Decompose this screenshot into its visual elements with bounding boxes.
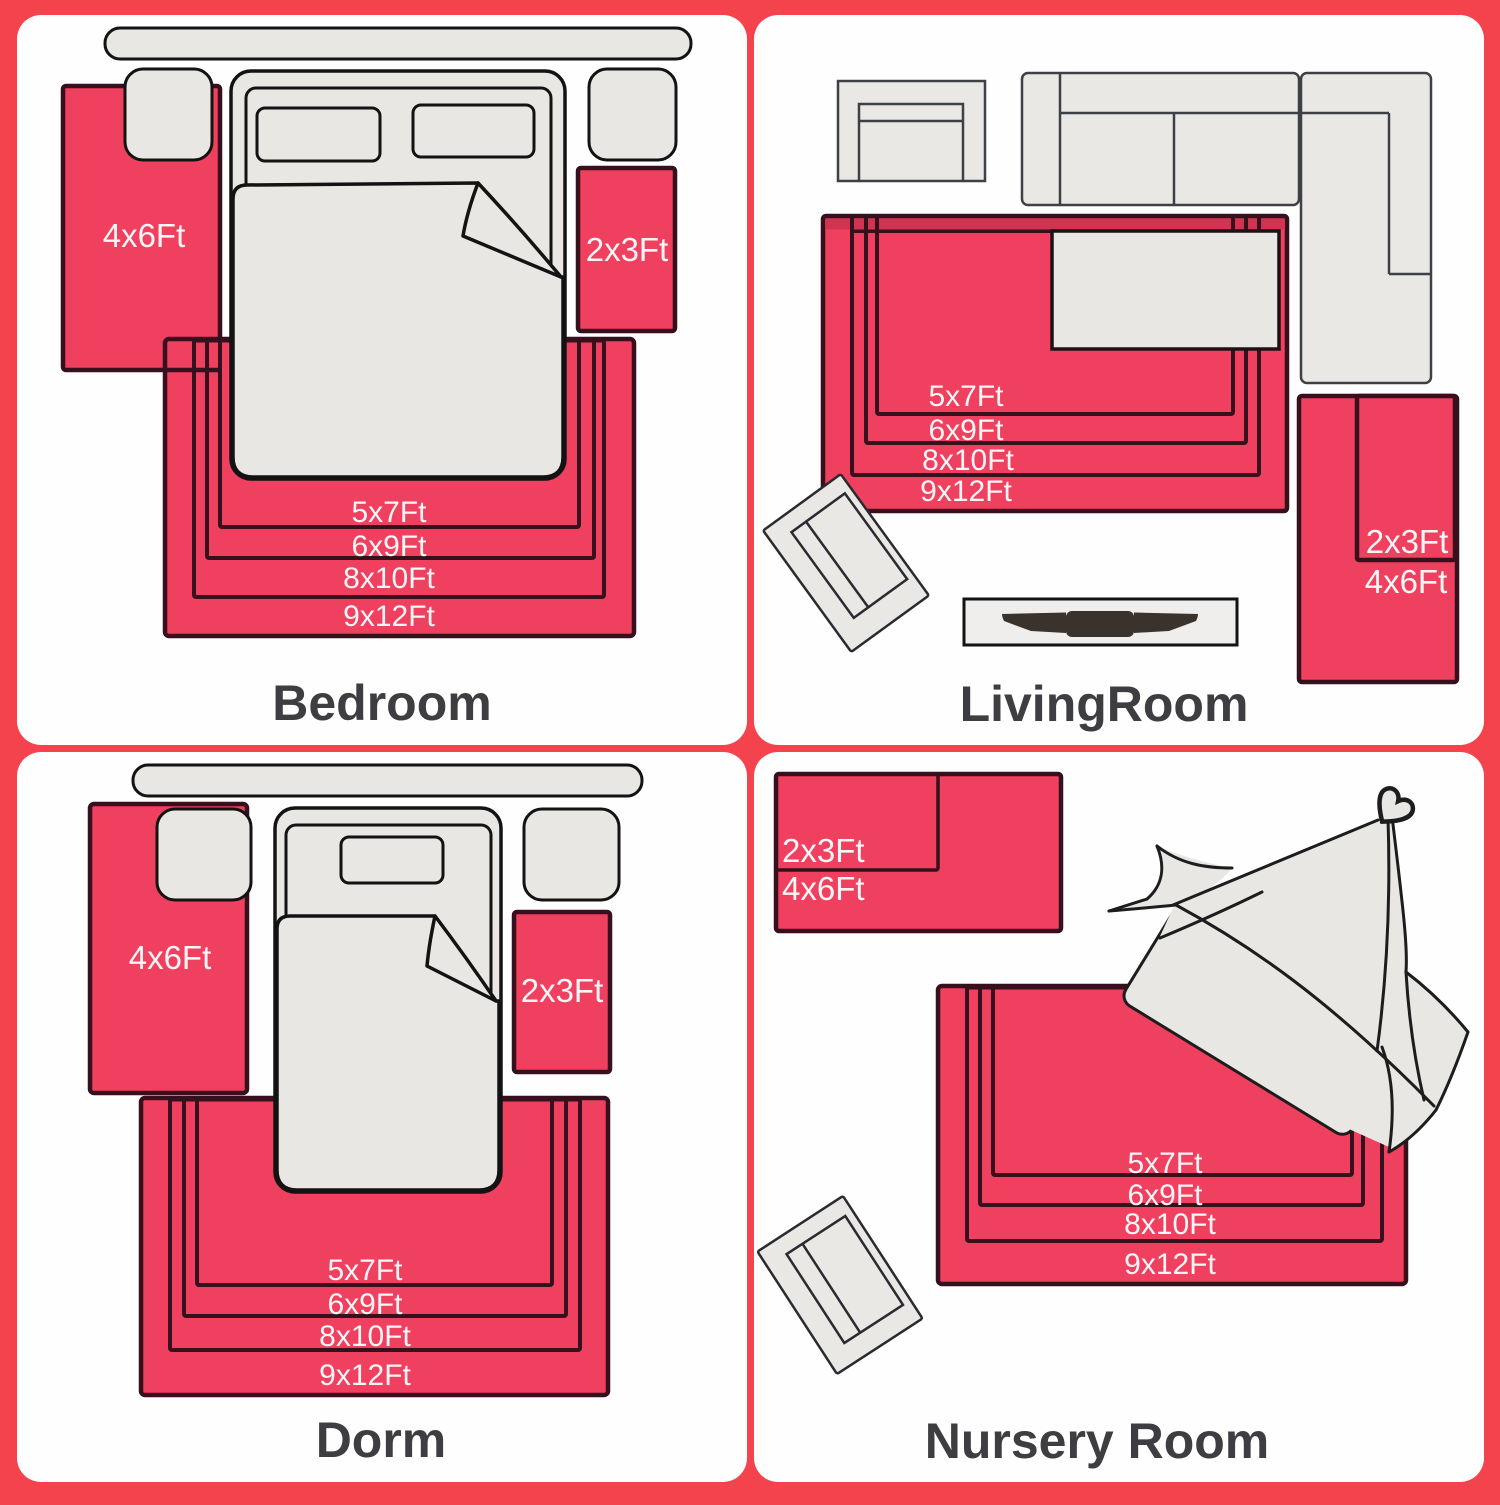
svg-text:4x6Ft: 4x6Ft — [1365, 563, 1448, 600]
svg-text:8x10Ft: 8x10Ft — [319, 1320, 411, 1353]
svg-text:6x9Ft: 6x9Ft — [928, 414, 1004, 447]
svg-text:8x10Ft: 8x10Ft — [922, 444, 1014, 477]
svg-text:Nursery Room: Nursery Room — [925, 1413, 1270, 1469]
svg-text:4x6Ft: 4x6Ft — [103, 217, 186, 254]
svg-text:9x12Ft: 9x12Ft — [1124, 1248, 1216, 1281]
svg-text:Dorm: Dorm — [316, 1412, 447, 1468]
svg-text:LivingRoom: LivingRoom — [960, 676, 1249, 732]
svg-text:8x10Ft: 8x10Ft — [343, 562, 435, 595]
svg-text:2x3Ft: 2x3Ft — [521, 972, 604, 1009]
svg-text:4x6Ft: 4x6Ft — [782, 870, 865, 907]
svg-text:8x10Ft: 8x10Ft — [1124, 1208, 1216, 1241]
svg-text:Bedroom: Bedroom — [272, 675, 491, 731]
svg-text:2x3Ft: 2x3Ft — [1366, 523, 1449, 560]
svg-text:5x7Ft: 5x7Ft — [1127, 1147, 1203, 1180]
svg-text:5x7Ft: 5x7Ft — [327, 1254, 403, 1287]
svg-text:9x12Ft: 9x12Ft — [920, 475, 1012, 508]
svg-text:6x9Ft: 6x9Ft — [351, 530, 427, 563]
svg-text:6x9Ft: 6x9Ft — [327, 1288, 403, 1321]
svg-text:9x12Ft: 9x12Ft — [319, 1359, 411, 1392]
svg-text:9x12Ft: 9x12Ft — [343, 600, 435, 633]
svg-text:5x7Ft: 5x7Ft — [928, 380, 1004, 413]
svg-text:4x6Ft: 4x6Ft — [129, 939, 212, 976]
svg-text:2x3Ft: 2x3Ft — [782, 832, 865, 869]
svg-text:5x7Ft: 5x7Ft — [351, 496, 427, 529]
svg-text:2x3Ft: 2x3Ft — [586, 231, 669, 268]
